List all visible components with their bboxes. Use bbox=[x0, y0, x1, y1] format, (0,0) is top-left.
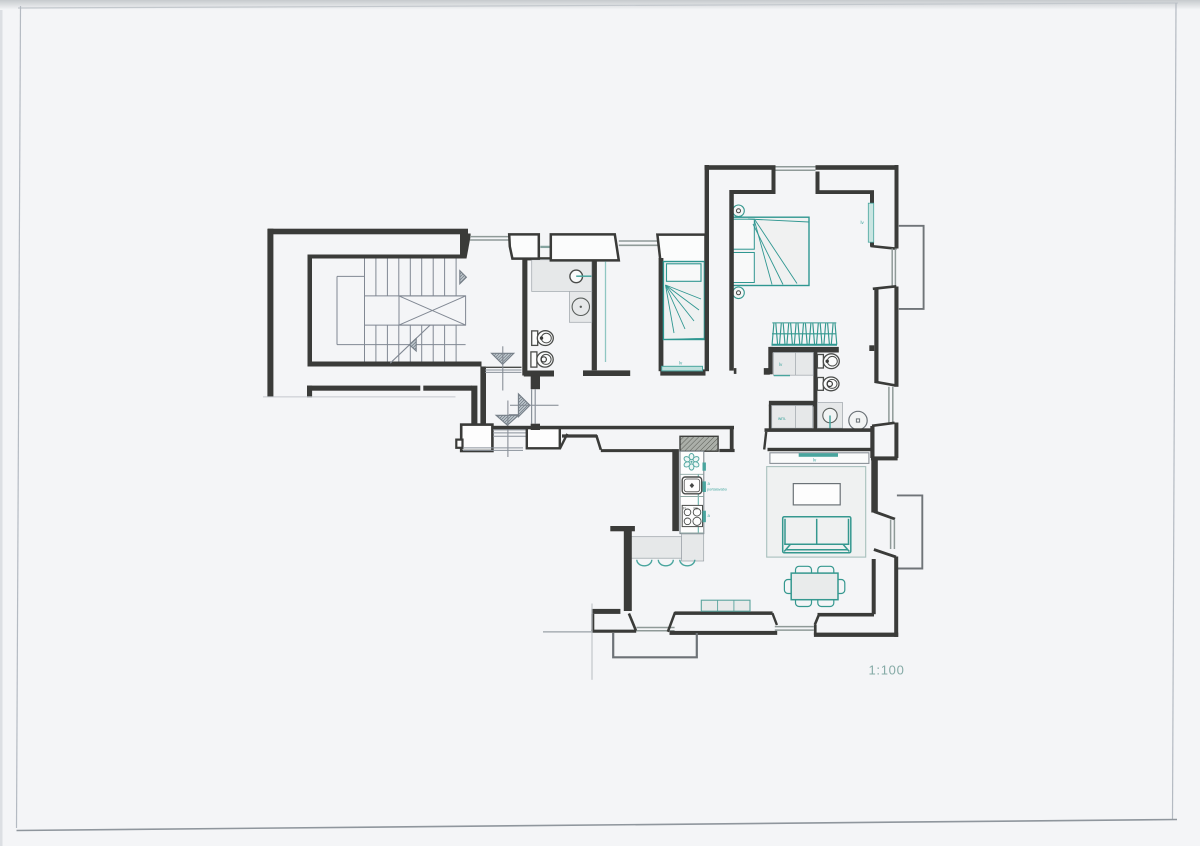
svg-text:1:100: 1:100 bbox=[869, 663, 905, 678]
svg-text:FB: FB bbox=[694, 506, 698, 510]
svg-text:portalavabo: portalavabo bbox=[707, 488, 727, 492]
svg-text:wm.: wm. bbox=[778, 416, 786, 421]
svg-text:FL: FL bbox=[683, 506, 687, 510]
